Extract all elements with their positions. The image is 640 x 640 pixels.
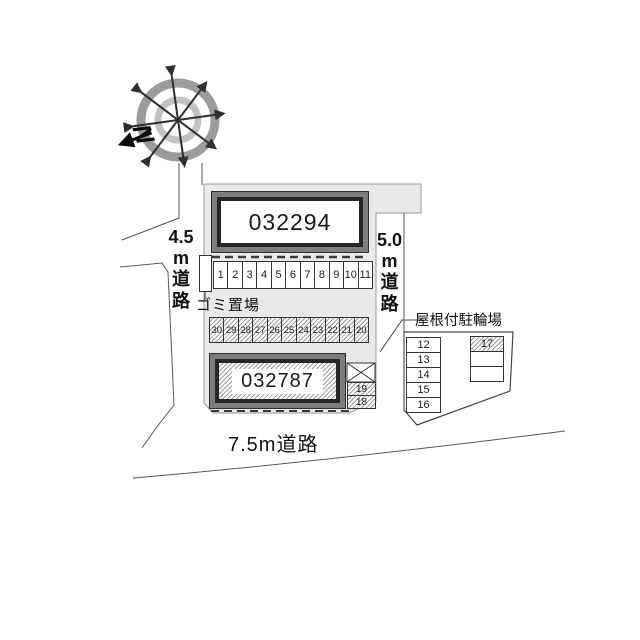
- parking-space-22: 22: [325, 317, 340, 343]
- parking-space-28: 28: [238, 317, 253, 343]
- road-west-char-m: m: [173, 248, 189, 269]
- parking-space-27: 27: [252, 317, 267, 343]
- parking-space-9: 9: [329, 261, 344, 289]
- road-east-char-道: 道: [381, 272, 399, 293]
- road-south-label: 7.5m道路: [228, 428, 318, 457]
- road-east-label: 5.0m道路: [373, 230, 406, 315]
- road-west-char-道: 道: [172, 269, 190, 290]
- parking-space-14: 14: [406, 367, 441, 383]
- parking-space-2: 2: [227, 261, 242, 289]
- parking-space-26: 26: [267, 317, 282, 343]
- compass-rose: N: [112, 68, 230, 174]
- parking-space-20: 20: [354, 317, 369, 343]
- parking-row-middle: 3029282726252423222120: [209, 317, 369, 343]
- bike-shed-column: 17: [470, 336, 504, 382]
- road-east-char-5.0: 5.0: [377, 230, 402, 251]
- building-upper: 032294: [211, 191, 369, 253]
- parking-space-11: 11: [358, 261, 373, 289]
- bike-cell-empty-2: [470, 366, 504, 382]
- road-west-char-路: 路: [172, 291, 190, 312]
- road-east-char-路: 路: [381, 294, 399, 315]
- parking-space-30: 30: [209, 317, 224, 343]
- parking-space-7: 7: [300, 261, 315, 289]
- road-west-char-4.5: 4.5: [168, 227, 193, 248]
- bike-parking-label: 屋根付駐輪場: [415, 309, 502, 330]
- parking-space-18: 18: [347, 395, 376, 409]
- site-plan-map: N 032294 ゴミ置場 1234567891011 302928272625…: [0, 0, 640, 640]
- parking-space-15: 15: [406, 382, 441, 398]
- parking-space-10: 10: [343, 261, 358, 289]
- building-upper-label: 032294: [249, 209, 332, 236]
- parking-row-top: 1234567891011: [213, 261, 373, 289]
- building-lower-label: 032787: [232, 369, 323, 394]
- parking-space-23: 23: [310, 317, 325, 343]
- bike-cell-17: 17: [470, 336, 504, 352]
- road-west-label: 4.5m道路: [162, 227, 200, 312]
- parking-space-29: 29: [223, 317, 238, 343]
- parking-space-6: 6: [285, 261, 300, 289]
- parking-space-25: 25: [281, 317, 296, 343]
- parking-space-16: 16: [406, 397, 441, 413]
- garbage-box: [199, 255, 212, 292]
- parking-space-5: 5: [271, 261, 286, 289]
- garbage-label: ゴミ置場: [196, 294, 260, 315]
- parking-space-12: 12: [406, 337, 441, 353]
- crossed-box: [347, 363, 375, 382]
- parking-space-3: 3: [242, 261, 257, 289]
- parking-space-8: 8: [314, 261, 329, 289]
- parking-space-24: 24: [296, 317, 311, 343]
- building-lower: 032787: [209, 353, 346, 409]
- road-south-curve: [133, 431, 565, 478]
- bike-cell-empty-1: [470, 351, 504, 367]
- parking-space-4: 4: [256, 261, 271, 289]
- parking-column-right: 1213141516: [406, 337, 441, 413]
- parking-space-13: 13: [406, 352, 441, 368]
- parking-space-21: 21: [339, 317, 354, 343]
- parking-space-19: 19: [347, 382, 376, 396]
- road-east-char-m: m: [381, 251, 397, 272]
- parking-space-1: 1: [213, 261, 228, 289]
